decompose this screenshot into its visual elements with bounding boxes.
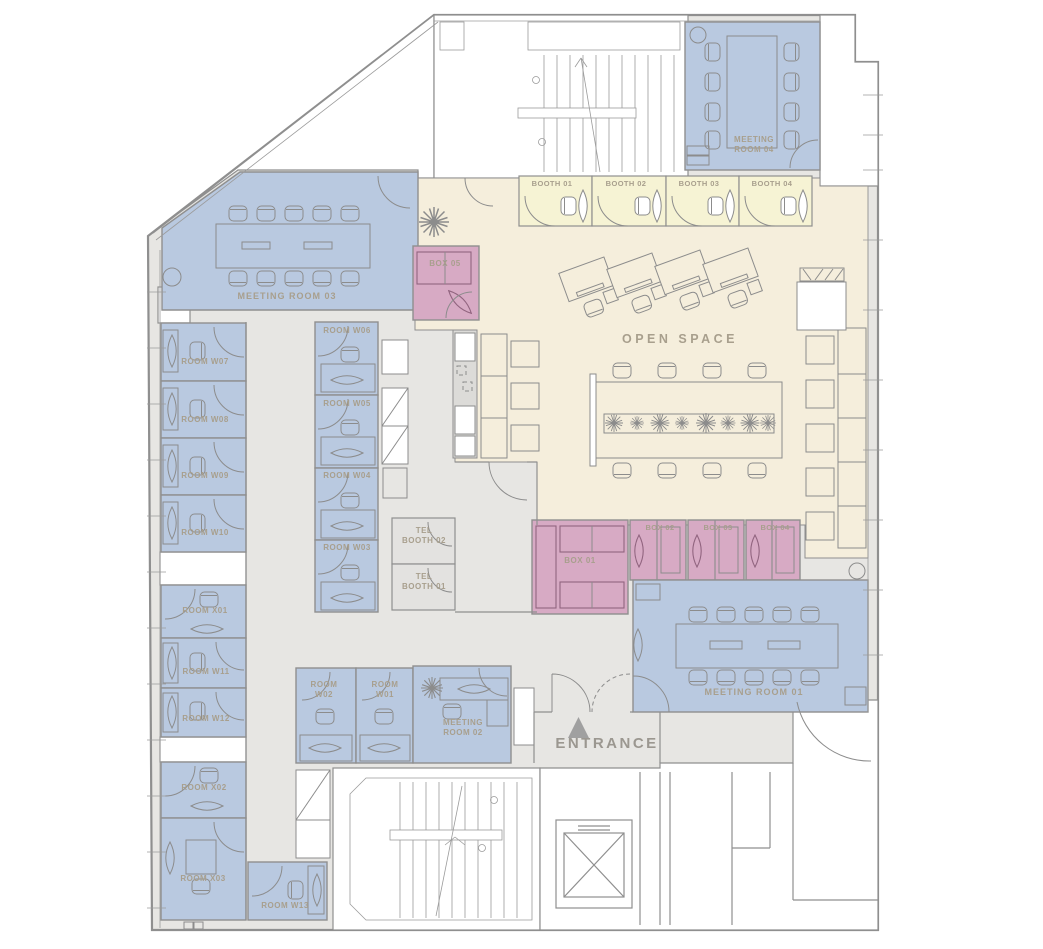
room-meeting-room-02 [413,666,511,763]
rooms-bottom [296,666,511,763]
room-w06 [315,322,378,395]
booth-03 [666,176,739,226]
room-w04 [315,468,378,540]
booth-02 [592,176,666,226]
plant-open-space [419,207,449,237]
room-w02 [296,668,356,763]
room-w12 [161,688,246,737]
focus-booths [519,176,812,226]
room-w07 [161,323,246,381]
room-w11 [161,638,246,688]
room-w08 [161,381,246,438]
rooms-middle-column [315,322,378,612]
room-w13 [248,862,327,920]
booth-04 [739,176,812,226]
box-03 [688,520,744,580]
elevator [556,820,632,908]
room-meeting-room-01 [633,580,868,712]
stairwell-top [434,15,688,178]
room-w05 [315,395,378,468]
room-w03 [315,540,378,612]
room-meeting-room-04 [685,22,820,170]
box-05 [413,246,479,320]
room-meeting-room-03 [162,172,418,310]
box-01 [532,520,628,614]
room-x03 [161,818,246,920]
room-w01 [356,668,413,763]
floorplan-drawing [0,0,1043,949]
void-left-2 [160,737,246,762]
tel-booths [392,518,455,610]
room-x02 [161,762,246,818]
kitchen-counter [453,330,477,458]
box-04 [746,520,800,580]
room-w09 [161,438,246,495]
office-floor-plan: MEETING ROOM 03 ROOM W07 ROOM W08 ROOM W… [0,0,1043,949]
room-x01 [161,585,246,638]
room-w10 [161,495,246,552]
box-02 [630,520,686,580]
stairwell-bottom [333,768,540,930]
booth-01 [519,176,592,226]
top-right-core [820,15,878,186]
void-left-1 [160,552,246,585]
